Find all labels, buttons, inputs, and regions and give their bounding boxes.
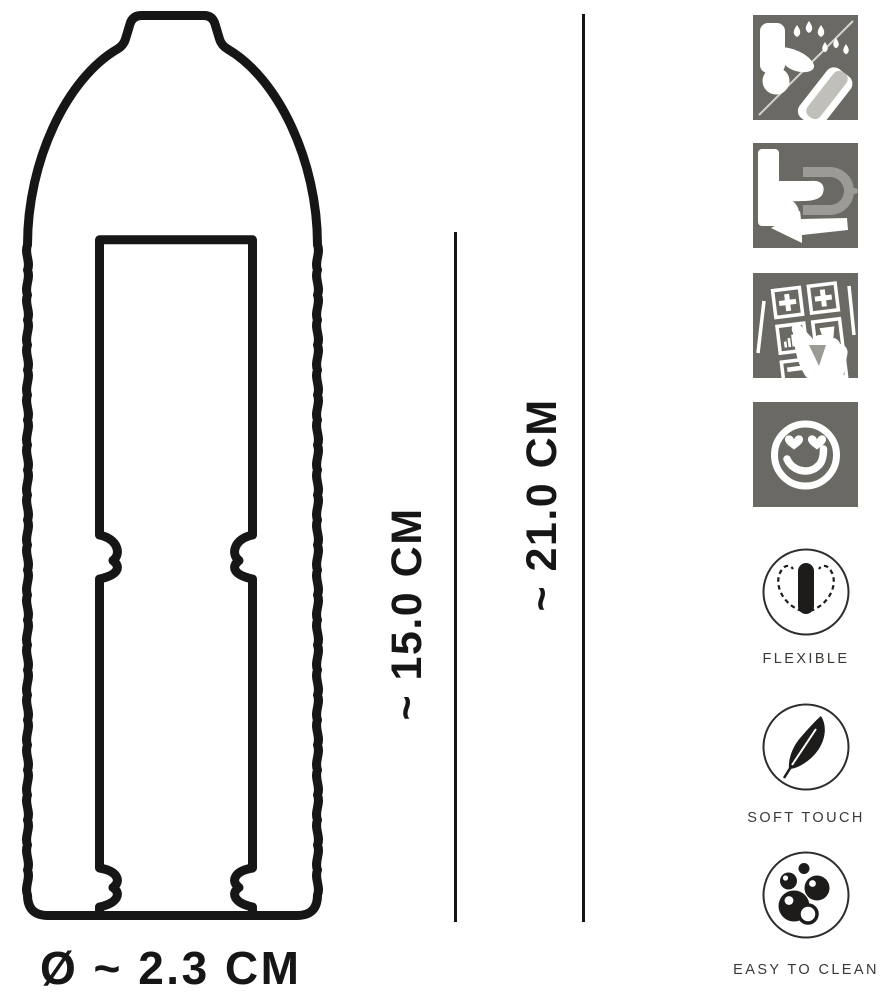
flexible-icon — [762, 548, 850, 636]
lubricant-compatible-icon — [753, 15, 858, 120]
product-dimension-diagram: ~ 15.0 CM ~ 21.0 CM Ø ~ 2.3 CM — [0, 0, 889, 1000]
diameter-label: Ø ~ 2.3 CM — [40, 941, 301, 995]
bubbles-icon — [762, 851, 850, 939]
inner-channel-outline — [100, 240, 253, 916]
dimension-line-inner-length — [454, 232, 457, 922]
feature-label-flexible: FLEXIBLE — [706, 651, 889, 667]
selection-panel-icon — [753, 273, 858, 378]
feature-label-soft-touch: SOFT TOUCH — [706, 810, 889, 826]
slide-on-sleeve-icon — [753, 143, 858, 248]
dimension-line-total-length — [582, 14, 585, 922]
feature-label-easy-to-clean: EASY TO CLEAN — [706, 962, 889, 978]
outer-outline — [26, 16, 318, 916]
inner-length-label: ~ 15.0 CM — [383, 489, 431, 739]
sleeve-cross-section-drawing — [0, 0, 360, 940]
smiley-heart-eyes-icon — [753, 402, 858, 507]
feather-icon — [762, 703, 850, 791]
total-length-label: ~ 21.0 CM — [518, 380, 566, 630]
